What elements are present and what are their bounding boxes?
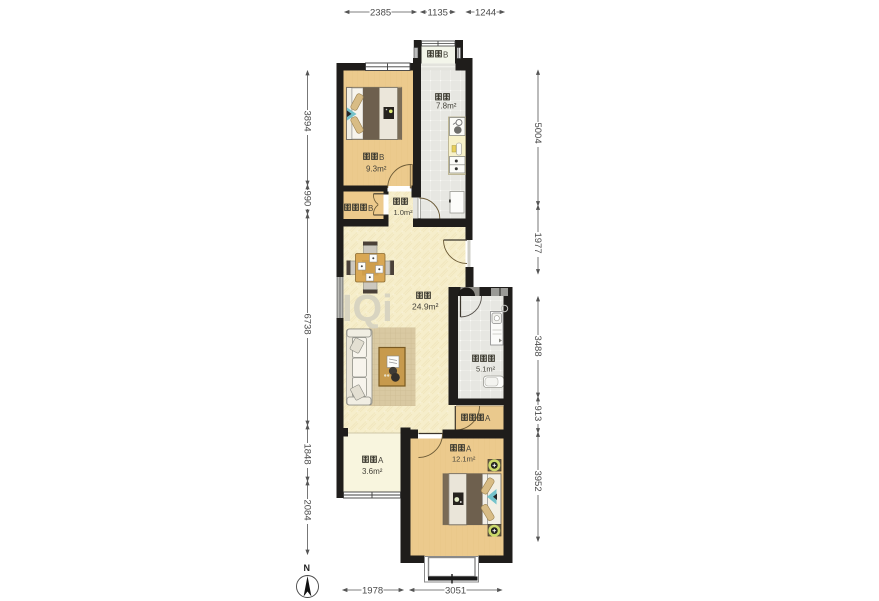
svg-text:3952: 3952 (532, 471, 543, 492)
svg-text:6738: 6738 (302, 314, 313, 335)
svg-text:1244: 1244 (475, 8, 496, 19)
svg-text:9.3m²: 9.3m² (366, 165, 387, 174)
svg-text:3.6m²: 3.6m² (362, 467, 383, 476)
svg-text:1848: 1848 (302, 444, 313, 465)
svg-text:3894: 3894 (302, 111, 313, 132)
svg-text:B: B (379, 153, 384, 162)
svg-text:2084: 2084 (302, 500, 313, 521)
svg-text:5.1m²: 5.1m² (476, 365, 496, 374)
svg-text:24.9m²: 24.9m² (412, 302, 439, 312)
svg-text:A: A (378, 456, 384, 465)
svg-text:1.0m²: 1.0m² (394, 208, 414, 217)
svg-text:B: B (368, 204, 373, 213)
svg-text:12.1m²: 12.1m² (452, 455, 476, 464)
svg-text:990: 990 (302, 191, 313, 207)
svg-text:A: A (466, 445, 472, 454)
svg-text:3488: 3488 (532, 336, 543, 357)
svg-text:3051: 3051 (445, 586, 466, 597)
svg-text:5004: 5004 (532, 123, 543, 144)
svg-text:1977: 1977 (532, 233, 543, 254)
svg-text:7.8m²: 7.8m² (436, 102, 457, 111)
svg-text:1135: 1135 (428, 8, 448, 19)
svg-text:1978: 1978 (362, 586, 383, 597)
svg-text:B: B (443, 51, 448, 60)
svg-text:IQi: IQi (342, 288, 393, 330)
svg-text:913: 913 (532, 406, 543, 422)
svg-text:A: A (485, 414, 491, 423)
svg-text:N: N (304, 563, 311, 573)
svg-text:2385: 2385 (370, 8, 391, 19)
